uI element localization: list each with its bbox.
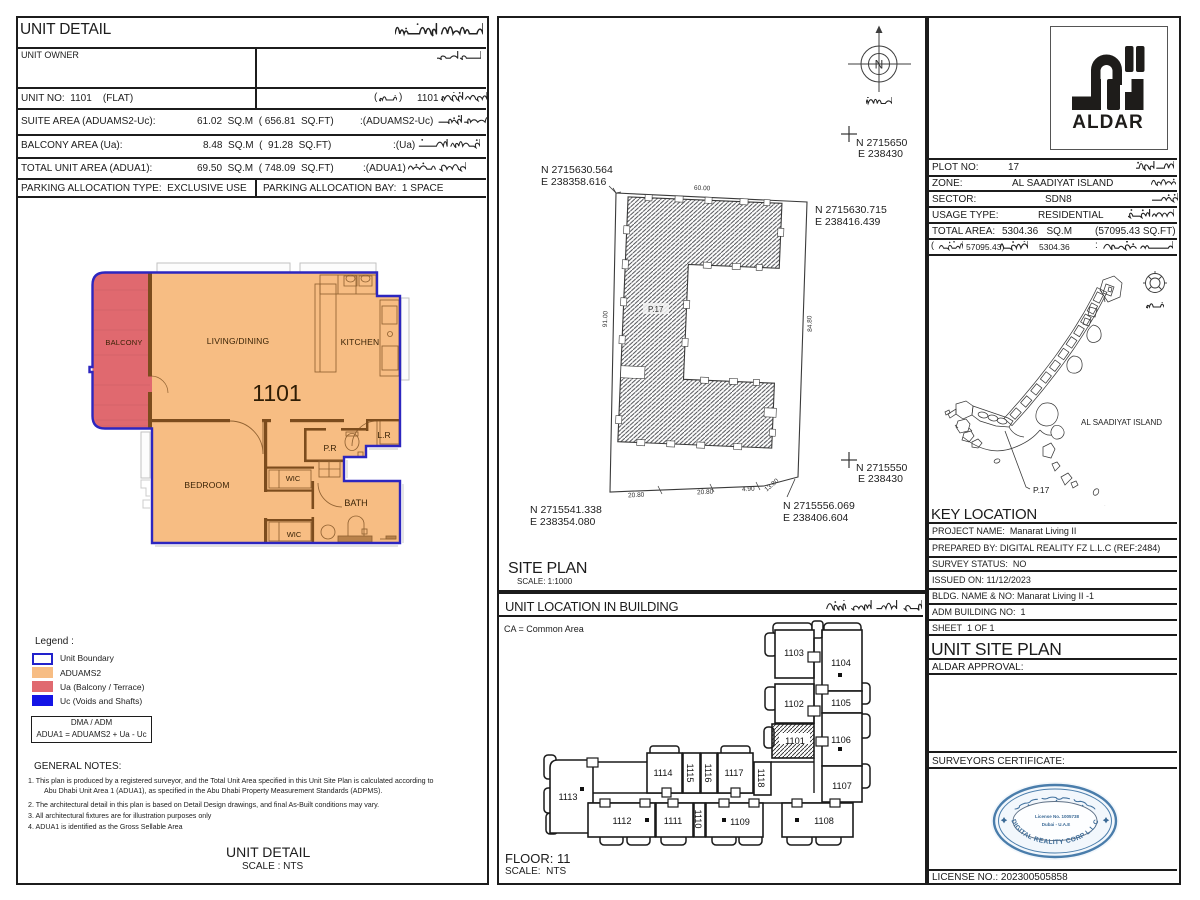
svg-text:1115: 1115 [685,763,695,782]
svg-text:BATH: BATH [344,498,367,508]
svg-text:20.80: 20.80 [697,488,714,496]
svg-text:E 238354.080: E 238354.080 [530,516,596,528]
svg-text:P.17: P.17 [1033,485,1050,495]
svg-text:1108: 1108 [814,816,834,826]
svg-text:1101: 1101 [785,736,805,746]
svg-text:1110: 1110 [693,809,703,828]
svg-text:E 238416.439: E 238416.439 [815,216,881,228]
svg-text:1118: 1118 [756,768,766,787]
svg-text:N 2715556.069: N 2715556.069 [783,500,855,512]
svg-text:BALCONY: BALCONY [105,338,142,347]
svg-text:1103: 1103 [784,648,804,658]
svg-text:1111: 1111 [664,816,682,826]
svg-text:N 2715541.338: N 2715541.338 [530,504,602,516]
svg-text:E 238406.604: E 238406.604 [783,512,849,524]
svg-text:20.80: 20.80 [628,492,645,500]
svg-text:N 2715630.715: N 2715630.715 [815,204,887,216]
svg-text:1101: 1101 [252,380,301,406]
svg-text:1114: 1114 [653,768,672,778]
svg-text:E 238430: E 238430 [858,473,903,485]
svg-text:1117: 1117 [724,768,743,778]
svg-text:KITCHEN: KITCHEN [341,337,380,347]
svg-text:1104: 1104 [831,658,851,668]
svg-text:ALDAR: ALDAR [1072,112,1144,133]
svg-text:P.R: P.R [323,443,336,453]
svg-text:1106: 1106 [831,735,851,745]
svg-text:N 2715630.564: N 2715630.564 [541,164,613,176]
svg-text:84.80: 84.80 [806,315,814,332]
svg-text:1116: 1116 [703,763,713,782]
svg-text:E 238358.616: E 238358.616 [541,176,607,188]
svg-text:Dubai - U.A.E: Dubai - U.A.E [1042,822,1071,827]
svg-text:BEDROOM: BEDROOM [184,480,229,490]
svg-text:E 238430: E 238430 [858,148,903,160]
svg-text:13.80: 13.80 [763,477,780,493]
svg-text:1112: 1112 [612,816,631,826]
svg-text:L.R: L.R [377,430,390,440]
svg-text:4.90: 4.90 [742,486,755,494]
svg-text:1113: 1113 [558,792,577,802]
svg-text:WIC: WIC [286,474,301,483]
svg-text:WIC: WIC [287,530,302,539]
svg-text:P.17: P.17 [648,305,664,314]
svg-text:91.00: 91.00 [602,310,610,327]
svg-text:N: N [875,58,884,72]
svg-text:1109: 1109 [730,817,750,827]
svg-text:1105: 1105 [831,698,851,708]
svg-text:1107: 1107 [832,781,852,791]
svg-text:License No. 1005738: License No. 1005738 [1035,814,1080,819]
svg-text:AL SAADIYAT ISLAND: AL SAADIYAT ISLAND [1081,418,1162,427]
svg-text:1102: 1102 [784,699,804,709]
svg-text:LIVING/DINING: LIVING/DINING [207,336,270,346]
svg-text:60.00: 60.00 [694,185,711,193]
